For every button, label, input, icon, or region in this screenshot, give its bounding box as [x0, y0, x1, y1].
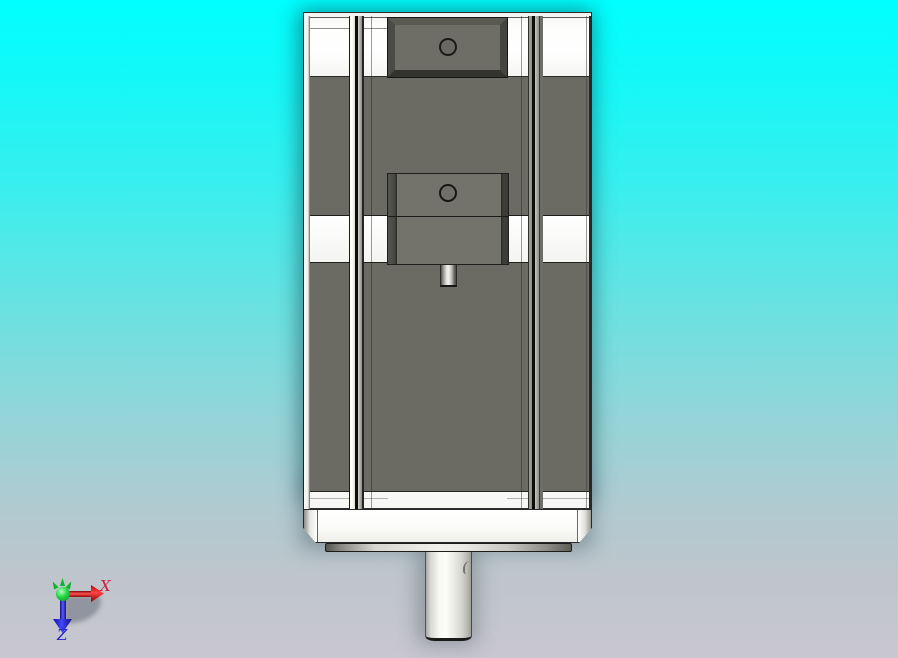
- right-inner-edge-line: [521, 16, 522, 509]
- x-axis-arrow[interactable]: [68, 591, 92, 597]
- x-axis-label: X: [100, 577, 111, 595]
- gearbox-right-side-face: [501, 174, 508, 264]
- triad-shadow: [64, 596, 101, 623]
- y-axis-arrowhead-icon: [60, 578, 65, 586]
- corner-chamfer-line: [304, 28, 387, 29]
- gearbox-left-side-face: [388, 174, 397, 264]
- coupling-shaft-stub[interactable]: [440, 265, 457, 287]
- left-corner-chamfer-strip: [349, 16, 364, 509]
- motor-bottom-cap-face[interactable]: [303, 491, 592, 509]
- left-edge-highlight: [303, 16, 310, 509]
- cad-viewport[interactable]: X Z: [0, 0, 898, 658]
- pilot-boss-cylinder[interactable]: [325, 543, 572, 552]
- y-axis-origin-ball[interactable]: [56, 587, 70, 601]
- front-flange-face[interactable]: [303, 509, 592, 543]
- gearbox-seam-line: [388, 216, 508, 217]
- corner-chamfer-line: [507, 498, 592, 499]
- corner-chamfer-line: [303, 498, 388, 499]
- gearbox-hole[interactable]: [439, 184, 457, 202]
- left-inner-edge-line: [371, 16, 372, 509]
- terminal-box-hole[interactable]: [439, 38, 457, 56]
- shaft-keyway-notch: [463, 561, 474, 574]
- z-axis-label: Z: [57, 626, 67, 644]
- right-edge-line: [586, 16, 587, 509]
- motor-body-lower-face[interactable]: [303, 263, 592, 491]
- right-edge-outline: [589, 16, 592, 509]
- right-corner-chamfer-strip: [528, 16, 543, 509]
